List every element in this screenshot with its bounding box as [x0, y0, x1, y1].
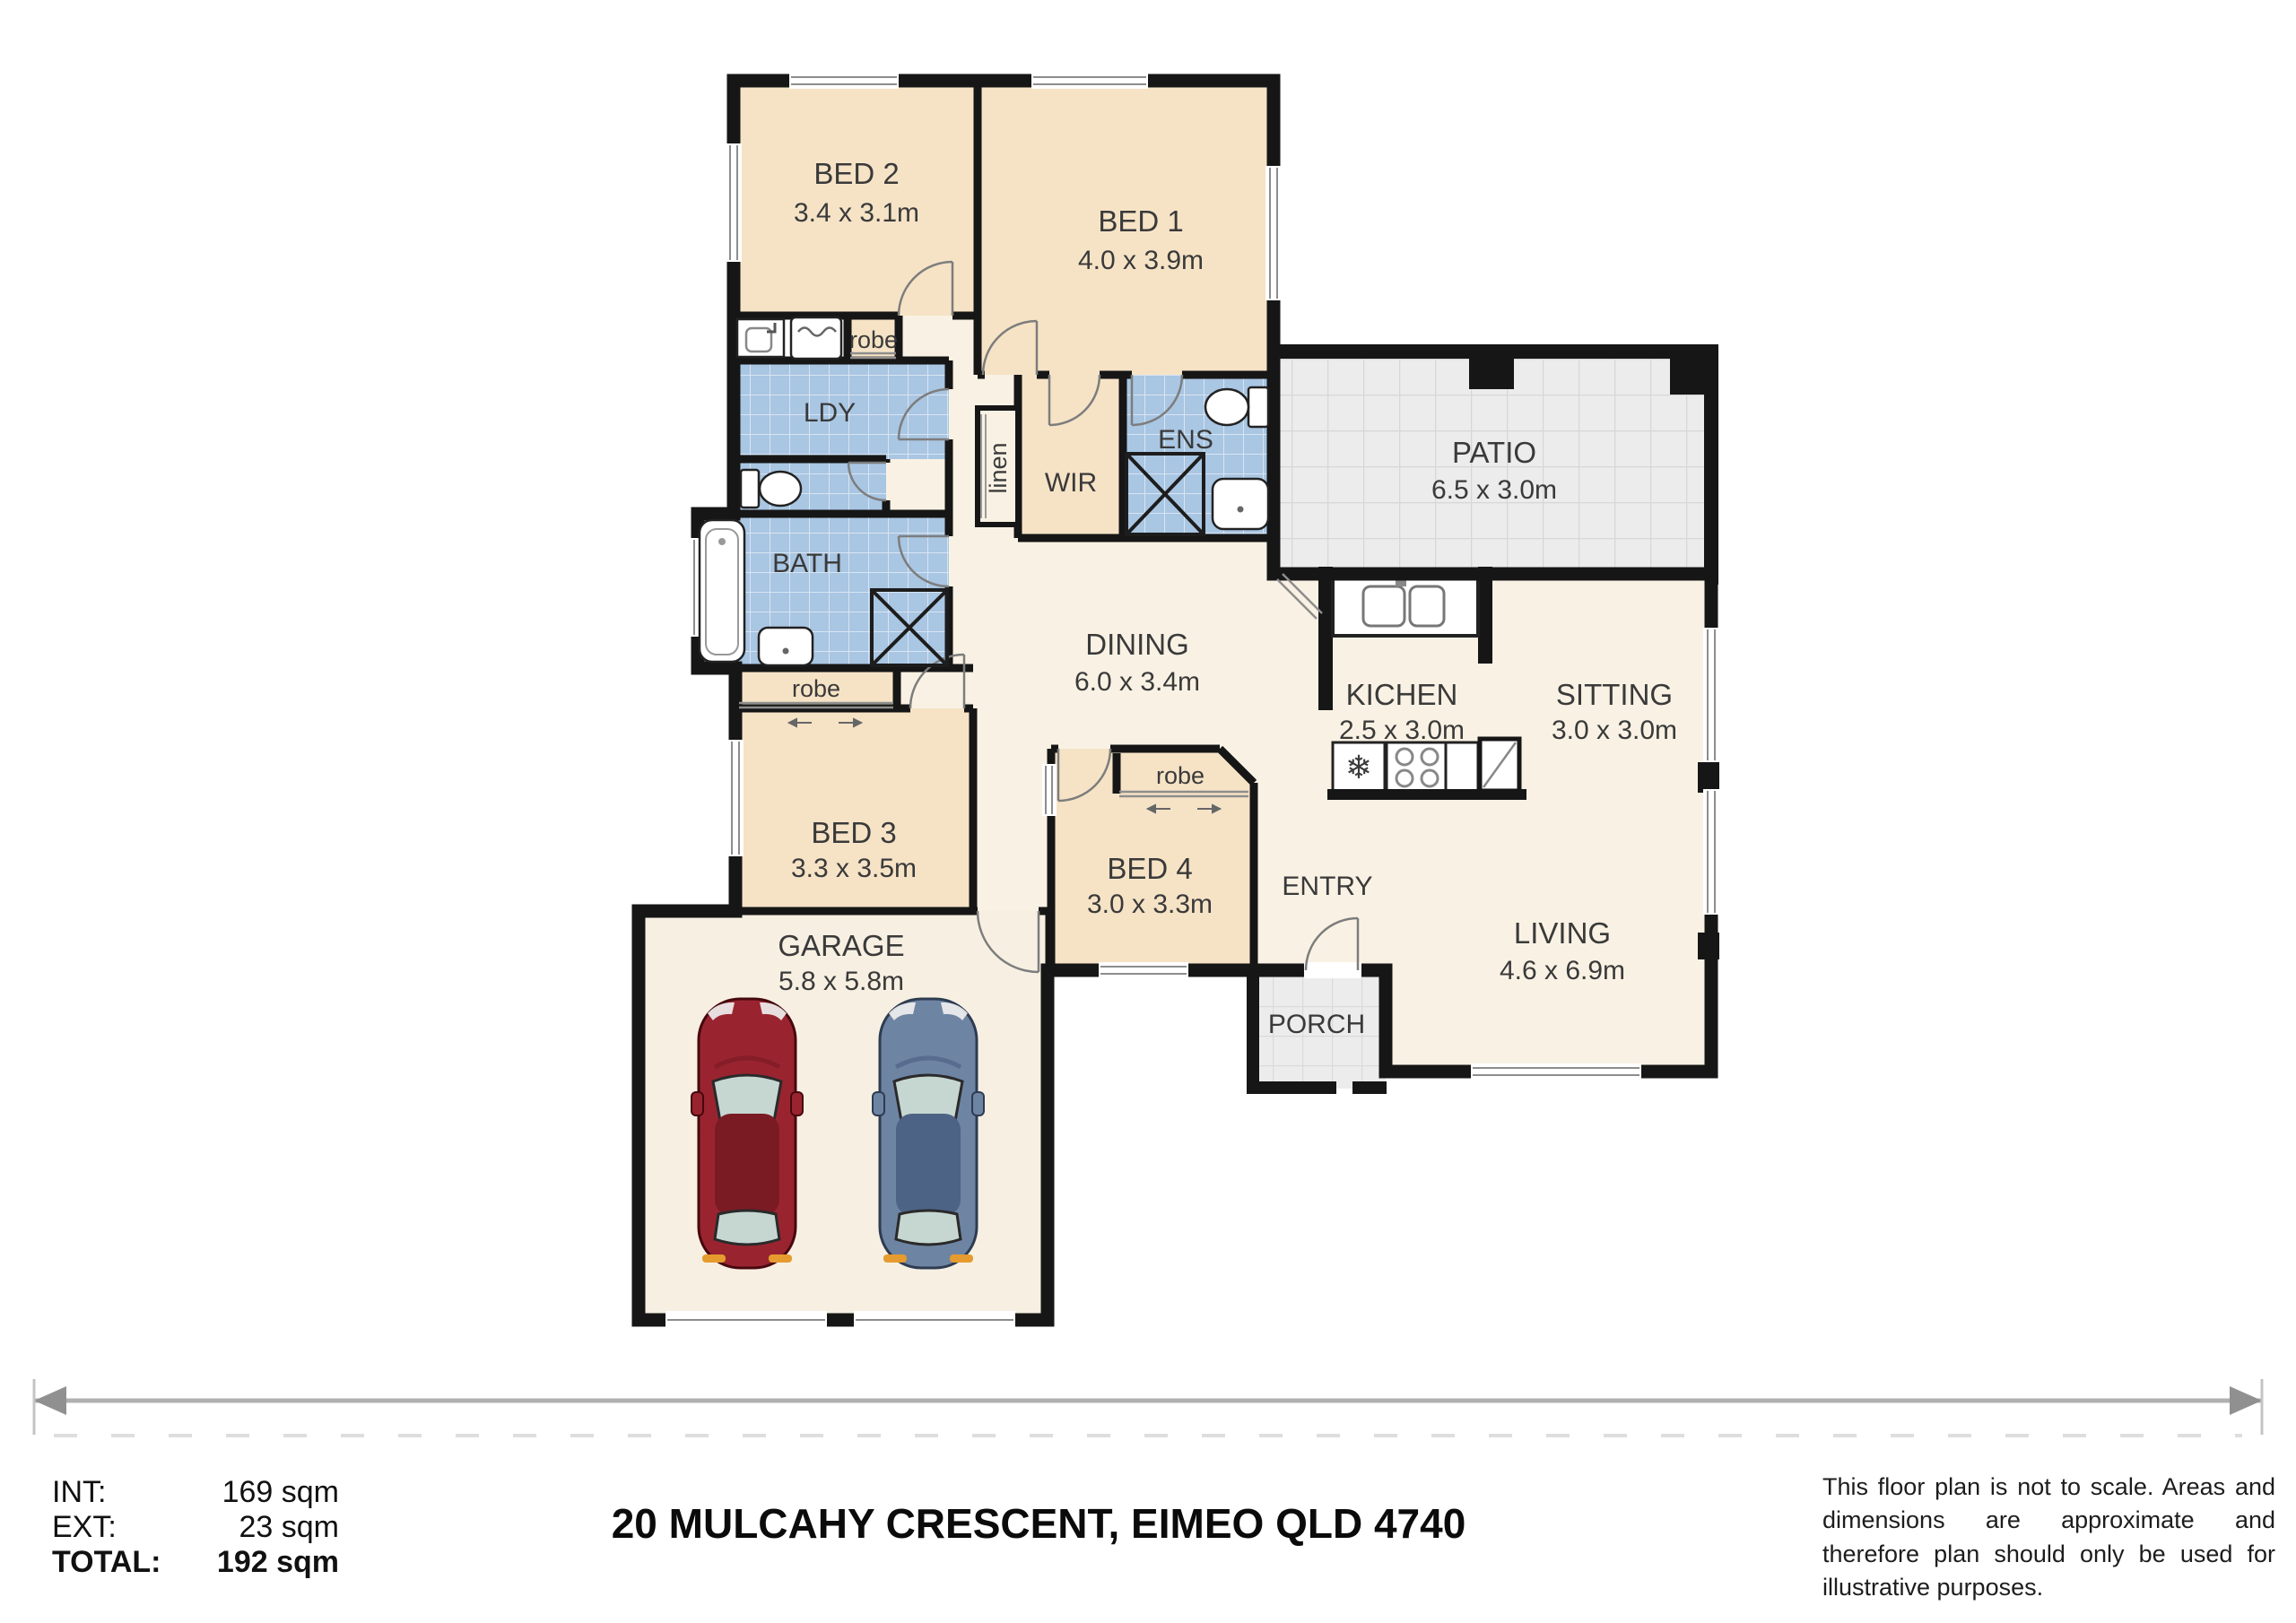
label-bed3: BED 3	[811, 816, 896, 849]
area-total-label: TOTAL:	[52, 1545, 161, 1580]
label-robe-bed4: robe	[1156, 762, 1205, 789]
area-total-value: 192 sqm	[217, 1545, 339, 1580]
area-row-total: TOTAL: 192 sqm	[52, 1545, 339, 1580]
label-linen: linen	[985, 442, 1012, 493]
kitchen-sink-icon	[1363, 586, 1405, 626]
label-ensuite: ENS	[1158, 425, 1213, 455]
toilet-icon	[1205, 387, 1268, 427]
label-bed1: BED 1	[1098, 204, 1183, 238]
label-wir: WIR	[1045, 468, 1097, 498]
room-wir-floor	[1018, 375, 1123, 538]
label-robe-bed3: robe	[792, 675, 840, 702]
label-bed4: BED 4	[1107, 852, 1192, 885]
area-int-label: INT:	[52, 1475, 106, 1510]
label-bed2-dims: 3.4 x 3.1m	[794, 198, 919, 228]
label-living-dims: 4.6 x 6.9m	[1500, 956, 1625, 985]
label-living: LIVING	[1514, 916, 1611, 950]
floor-plan-page: ❄	[0, 0, 2296, 1623]
label-sitting: SITTING	[1556, 678, 1673, 711]
area-summary: INT: 169 sqm EXT: 23 sqm TOTAL: 192 sqm	[52, 1475, 339, 1580]
label-robe-bed2: robe	[849, 326, 898, 353]
bathtub-icon	[700, 520, 744, 662]
blue-car-icon	[873, 999, 984, 1268]
toilet-icon	[741, 470, 801, 508]
label-garage: GARAGE	[778, 929, 904, 962]
area-ext-value: 23 sqm	[239, 1510, 340, 1545]
page-title: 20 MULCAHY CRESCENT, EIMEO QLD 4740	[612, 1499, 1466, 1548]
scale-arrow	[34, 1379, 2262, 1436]
area-ext-label: EXT:	[52, 1510, 117, 1545]
vanity-icon	[1213, 479, 1268, 529]
patio-pillar	[1670, 352, 1711, 395]
area-int-value: 169 sqm	[222, 1475, 339, 1510]
label-bed1-dims: 4.0 x 3.9m	[1078, 246, 1204, 275]
label-kitchen: KICHEN	[1346, 678, 1458, 711]
label-dining-dims: 6.0 x 3.4m	[1074, 667, 1200, 697]
label-bath: BATH	[772, 549, 842, 578]
patio-pillar	[1469, 352, 1514, 389]
label-patio: PATIO	[1452, 436, 1536, 469]
washer-icon	[791, 317, 841, 359]
label-laundry: LDY	[804, 398, 856, 428]
red-car-icon	[691, 999, 803, 1268]
label-sitting-dims: 3.0 x 3.0m	[1552, 716, 1677, 745]
label-bed3-dims: 3.3 x 3.5m	[791, 854, 917, 883]
label-bed2: BED 2	[813, 157, 899, 190]
floor-plan: ❄	[0, 0, 2296, 1623]
label-patio-dims: 6.5 x 3.0m	[1431, 475, 1557, 505]
vanity-icon	[759, 628, 813, 665]
area-row-int: INT: 169 sqm	[52, 1475, 339, 1510]
label-entry: ENTRY	[1282, 872, 1372, 901]
label-porch: PORCH	[1268, 1010, 1365, 1039]
label-dining: DINING	[1085, 628, 1189, 661]
label-garage-dims: 5.8 x 5.8m	[778, 967, 904, 996]
disclaimer-text: This floor plan is not to scale. Areas a…	[1822, 1471, 2275, 1604]
fridge-icon: ❄	[1345, 749, 1372, 785]
area-row-ext: EXT: 23 sqm	[52, 1510, 339, 1545]
label-kitchen-dims: 2.5 x 3.0m	[1339, 716, 1465, 745]
label-bed4-dims: 3.0 x 3.3m	[1087, 890, 1213, 919]
